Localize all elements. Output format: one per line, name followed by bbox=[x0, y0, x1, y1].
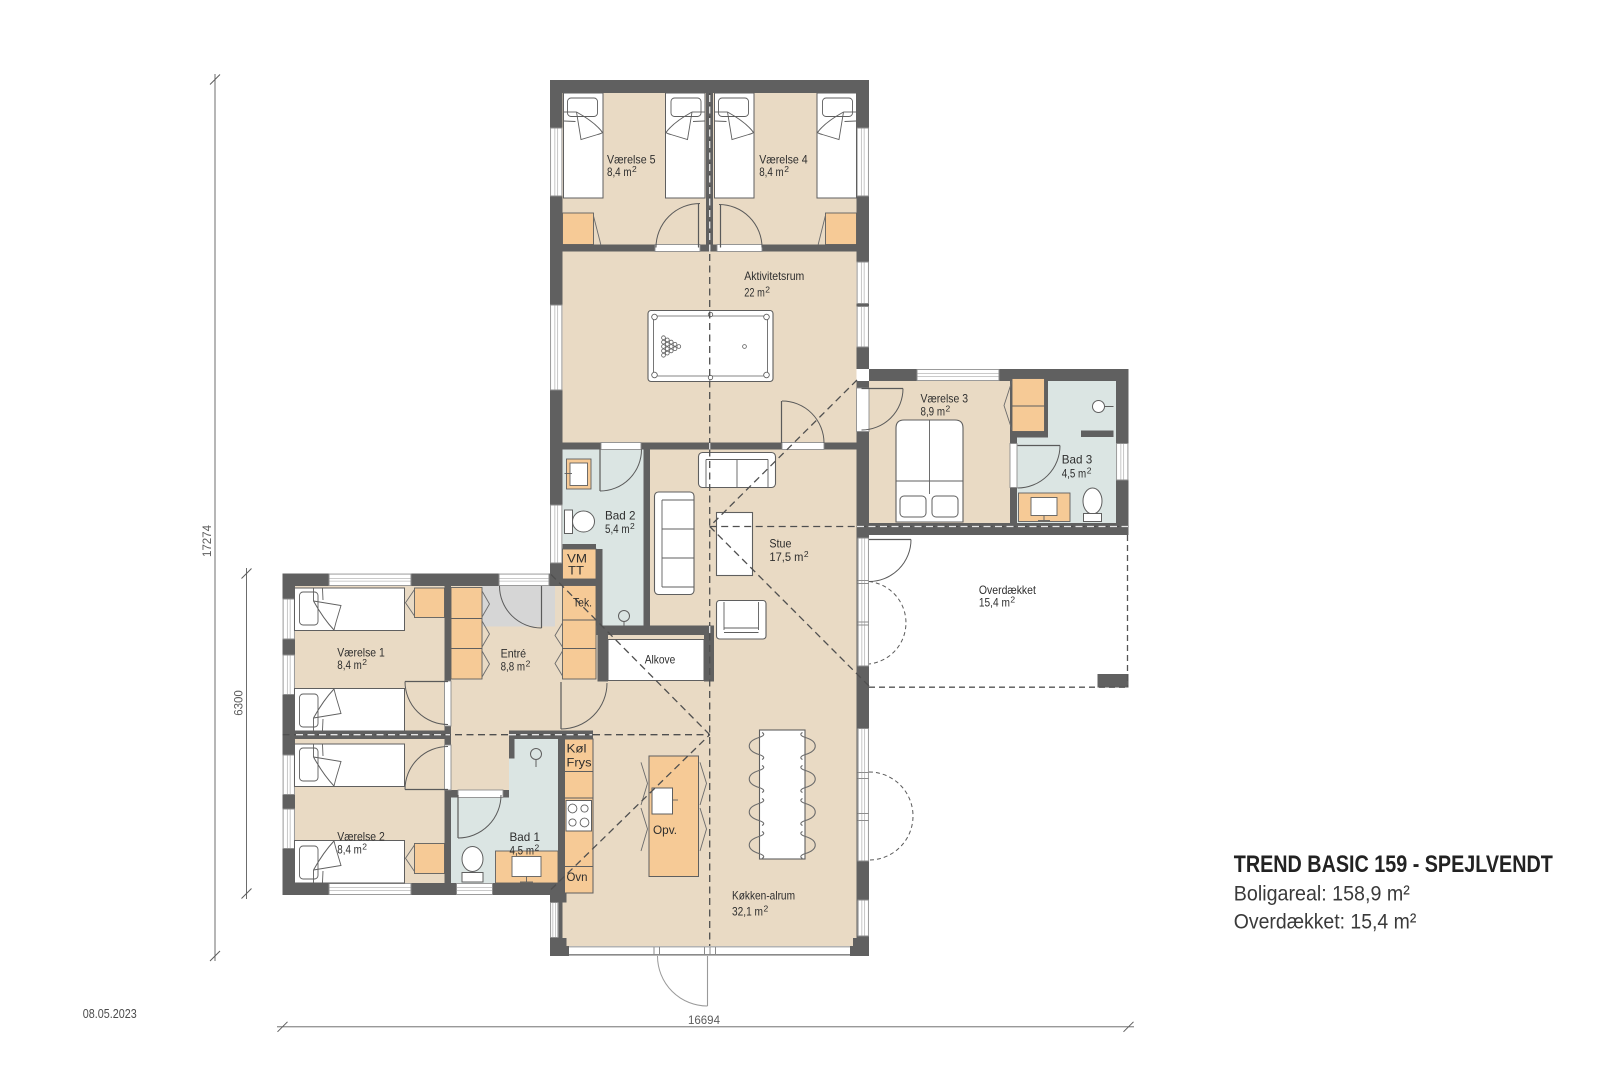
svg-text:8,4 m: 8,4 m bbox=[607, 165, 632, 179]
svg-text:32,1 m: 32,1 m bbox=[732, 905, 763, 919]
svg-text:Opv.: Opv. bbox=[653, 823, 677, 837]
svg-text:2: 2 bbox=[1087, 466, 1092, 476]
svg-text:Bad 3: Bad 3 bbox=[1062, 453, 1093, 467]
svg-text:2: 2 bbox=[362, 657, 367, 667]
svg-text:5,4 m: 5,4 m bbox=[605, 522, 630, 536]
svg-text:2: 2 bbox=[632, 164, 637, 174]
svg-text:2: 2 bbox=[784, 164, 789, 174]
svg-text:Entré: Entré bbox=[501, 647, 527, 661]
svg-text:Værelse 3: Værelse 3 bbox=[921, 392, 969, 406]
svg-text:Overdækket: 15,4 m²: Overdækket: 15,4 m² bbox=[1234, 910, 1417, 934]
svg-text:6300: 6300 bbox=[234, 690, 246, 716]
svg-text:2: 2 bbox=[765, 285, 770, 295]
svg-text:15,4 m: 15,4 m bbox=[979, 596, 1010, 610]
svg-text:TREND BASIC 159 - SPEJLVENDT: TREND BASIC 159 - SPEJLVENDT bbox=[1234, 851, 1553, 878]
svg-text:Tek.: Tek. bbox=[573, 596, 592, 610]
svg-text:Boligareal: 158,9 m²: Boligareal: 158,9 m² bbox=[1234, 882, 1410, 906]
svg-text:Stue: Stue bbox=[769, 537, 791, 551]
svg-text:8,8 m: 8,8 m bbox=[501, 660, 525, 674]
svg-text:2: 2 bbox=[764, 904, 769, 914]
svg-text:16694: 16694 bbox=[688, 1015, 721, 1027]
svg-text:Alkove: Alkove bbox=[645, 653, 676, 667]
svg-text:Aktivitetsrum: Aktivitetsrum bbox=[744, 269, 804, 283]
svg-text:Værelse 2: Værelse 2 bbox=[337, 830, 385, 844]
svg-text:8,9 m: 8,9 m bbox=[921, 405, 946, 419]
svg-text:Køl: Køl bbox=[567, 742, 587, 756]
svg-text:2: 2 bbox=[1010, 595, 1015, 605]
svg-text:22 m: 22 m bbox=[744, 286, 765, 300]
svg-text:17274: 17274 bbox=[202, 524, 214, 557]
svg-text:2: 2 bbox=[526, 659, 531, 669]
svg-text:2: 2 bbox=[535, 843, 540, 853]
svg-text:8,4 m: 8,4 m bbox=[759, 165, 784, 179]
svg-text:Ovn: Ovn bbox=[567, 870, 588, 884]
svg-text:8,4 m: 8,4 m bbox=[337, 843, 362, 857]
svg-text:4,5 m: 4,5 m bbox=[1062, 467, 1087, 481]
svg-text:8,4 m: 8,4 m bbox=[337, 658, 362, 672]
svg-text:2: 2 bbox=[362, 842, 367, 852]
svg-text:08.05.2023: 08.05.2023 bbox=[83, 1006, 137, 1021]
svg-text:17,5 m: 17,5 m bbox=[769, 550, 803, 564]
svg-text:Køkken-alrum: Køkken-alrum bbox=[732, 889, 795, 903]
svg-text:TT: TT bbox=[568, 564, 585, 578]
svg-text:2: 2 bbox=[946, 404, 951, 414]
svg-text:2: 2 bbox=[630, 521, 635, 531]
svg-text:4,5 m: 4,5 m bbox=[510, 844, 535, 858]
svg-text:Frys: Frys bbox=[567, 756, 592, 770]
svg-text:2: 2 bbox=[804, 549, 809, 559]
